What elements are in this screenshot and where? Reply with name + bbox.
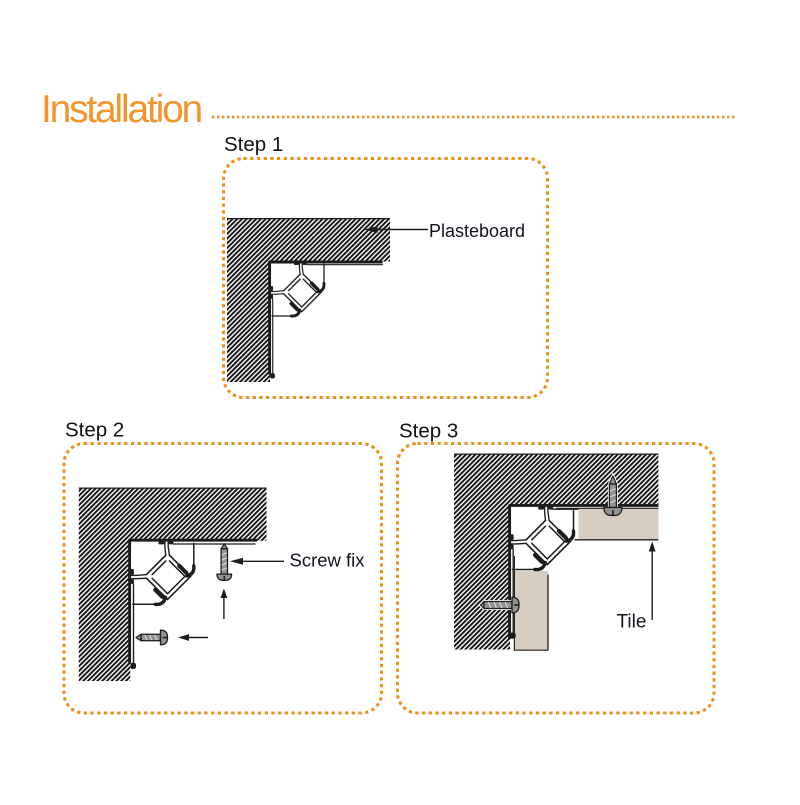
svg-text:Step 2: Step 2 (65, 418, 124, 441)
svg-text:Tile: Tile (617, 612, 647, 633)
svg-text:Plasteboard: Plasteboard (429, 221, 525, 241)
svg-text:Screw fix: Screw fix (290, 550, 366, 571)
svg-text:Step 3: Step 3 (399, 420, 458, 443)
svg-text:Step 1: Step 1 (224, 133, 283, 156)
svg-text:Installation: Installation (41, 88, 202, 131)
